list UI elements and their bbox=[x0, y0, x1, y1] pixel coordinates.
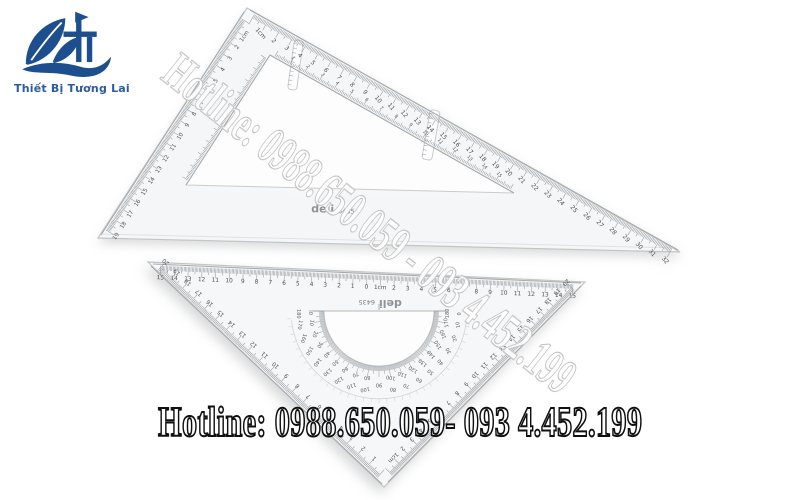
logo-mast-post bbox=[76, 17, 81, 62]
scale-number: 0 bbox=[364, 284, 368, 290]
degree-label: 80 bbox=[363, 374, 370, 381]
scale-number: 2 bbox=[392, 286, 396, 292]
scale-number: 12 bbox=[527, 292, 535, 298]
degree-label: 80 bbox=[389, 386, 396, 393]
scale-number: 3 bbox=[323, 283, 327, 289]
degree-label: 0 bbox=[307, 312, 313, 315]
scale-number: 1 bbox=[351, 284, 355, 290]
model-number: 6435 bbox=[358, 298, 375, 306]
scale-number: 10 bbox=[225, 278, 233, 284]
degree-label: 10 bbox=[308, 319, 315, 326]
hotline-banner: Hotline: 0988.650.059- 093 4.452.199 bbox=[0, 399, 800, 447]
scale-number: 5 bbox=[296, 281, 300, 287]
scale-number: 11 bbox=[514, 291, 522, 297]
scale-number: 12 bbox=[198, 277, 206, 283]
scale-number: 2 bbox=[337, 283, 341, 289]
degree-label: 90 bbox=[376, 381, 382, 387]
company-logo-icon bbox=[14, 10, 122, 80]
company-logo: Thiết Bị Tương Lai bbox=[14, 10, 144, 95]
logo-mast-post2 bbox=[87, 37, 92, 62]
hotline-banner-text: Hotline: 0988.650.059- 093 4.452.199 bbox=[158, 399, 642, 447]
scale-number: 4 bbox=[309, 282, 313, 288]
scale-number: 7 bbox=[268, 280, 272, 286]
scale-number: 11 bbox=[212, 278, 220, 284]
scale-number: 6 bbox=[282, 281, 286, 287]
company-logo-text: Thiết Bị Tương Lai bbox=[14, 82, 144, 95]
scale-number: 32 bbox=[660, 255, 670, 265]
scale-number: 8 bbox=[255, 280, 259, 286]
product-photo-stage: 1cm2345678910111213141516171819202122232… bbox=[0, 0, 800, 500]
scale-number: 9 bbox=[241, 279, 245, 285]
scale-number: 1cm bbox=[374, 285, 387, 292]
logo-mast-bar bbox=[64, 32, 97, 37]
brand-name: deli bbox=[379, 297, 402, 310]
degree-label: 180 bbox=[295, 309, 301, 319]
